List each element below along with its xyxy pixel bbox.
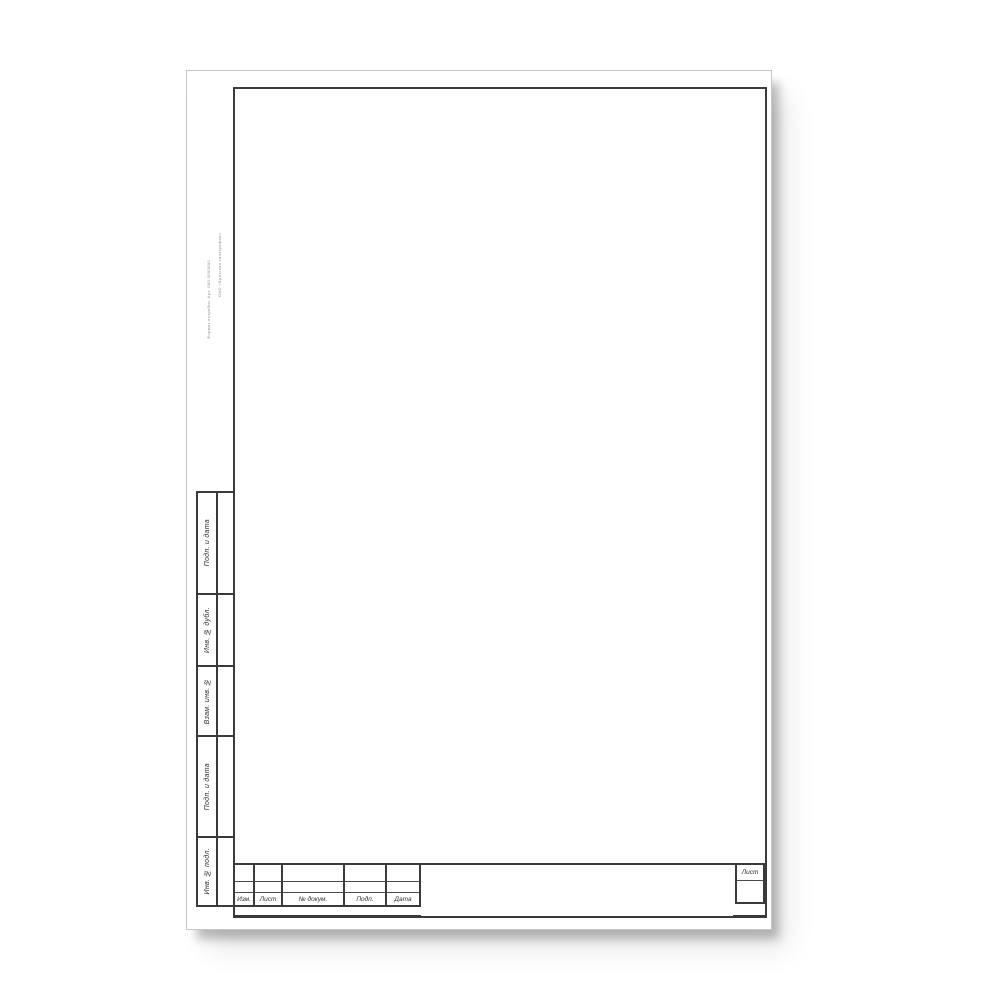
drawing-frame-border (233, 87, 767, 918)
side-box-signature-date-upper: Подп. и дата (198, 493, 233, 595)
revision-row-empty-2 (235, 882, 419, 893)
side-box-value-cell (218, 595, 233, 665)
side-box-inv-duplicate: Инв. № дубл. (198, 595, 233, 667)
header-date: Дата (387, 893, 419, 905)
header-signature: Подп. (345, 893, 387, 905)
header-list: Лист (255, 893, 283, 905)
left-inventory-strip: Подп. и дата Инв. № дубл. Взам. инв. № П… (196, 491, 235, 907)
revision-cell (387, 865, 419, 881)
header-izm: Изм. (235, 893, 255, 905)
revision-cell (255, 865, 283, 881)
side-box-signature-date-lower: Подп. и дата (198, 737, 233, 838)
side-box-value-cell (218, 493, 233, 593)
revision-cell (283, 865, 345, 881)
side-box-label: Инв. № подл. (204, 848, 211, 894)
side-box-label: Инв. № дубл. (204, 607, 211, 653)
side-box-label: Подп. и дата (204, 519, 211, 566)
revision-cell (283, 882, 345, 892)
scan-background: ОАО «Братская типография» Формат потреби… (0, 0, 1000, 1000)
sheet-number-box: Лист (735, 863, 765, 904)
side-box-replaced-inv: Взам. инв. № (198, 667, 233, 737)
revision-header-row: Изм. Лист № докум. Подп. Дата (235, 893, 419, 905)
revision-cell (235, 865, 255, 881)
side-box-value-cell (218, 838, 233, 905)
revision-cell (345, 882, 387, 892)
revision-row-empty-1 (235, 865, 419, 882)
revision-cell (235, 882, 255, 892)
header-doc-number: № докум. (283, 893, 345, 905)
side-box-label-cell: Инв. № дубл. (198, 595, 218, 665)
side-box-label-cell: Взам. инв. № (198, 667, 218, 735)
revision-table: Изм. Лист № докум. Подп. Дата (235, 863, 421, 907)
drawing-sheet: ОАО «Братская типография» Формат потреби… (186, 70, 772, 930)
revision-cell (255, 882, 283, 892)
side-box-value-cell (218, 667, 233, 735)
side-box-label-cell: Подп. и дата (198, 493, 218, 593)
side-box-inv-original: Инв. № подл. (198, 838, 233, 905)
revision-cell (345, 865, 387, 881)
side-box-label: Взам. инв. № (204, 678, 211, 724)
revision-cell (387, 882, 419, 892)
side-box-label: Подп. и дата (204, 763, 211, 810)
side-box-value-cell (218, 737, 233, 836)
side-box-label-cell: Подп. и дата (198, 737, 218, 836)
margin-imprint-line-2: Формат потребит. Арт. 000 0000000 (206, 225, 211, 339)
document-designation-field (421, 865, 733, 916)
sheet-number-value-cell (737, 881, 763, 902)
sheet-number-label: Лист (737, 865, 763, 881)
side-box-label-cell: Инв. № подл. (198, 838, 218, 905)
margin-imprint-line-1: ОАО «Братская типография» (217, 185, 222, 297)
